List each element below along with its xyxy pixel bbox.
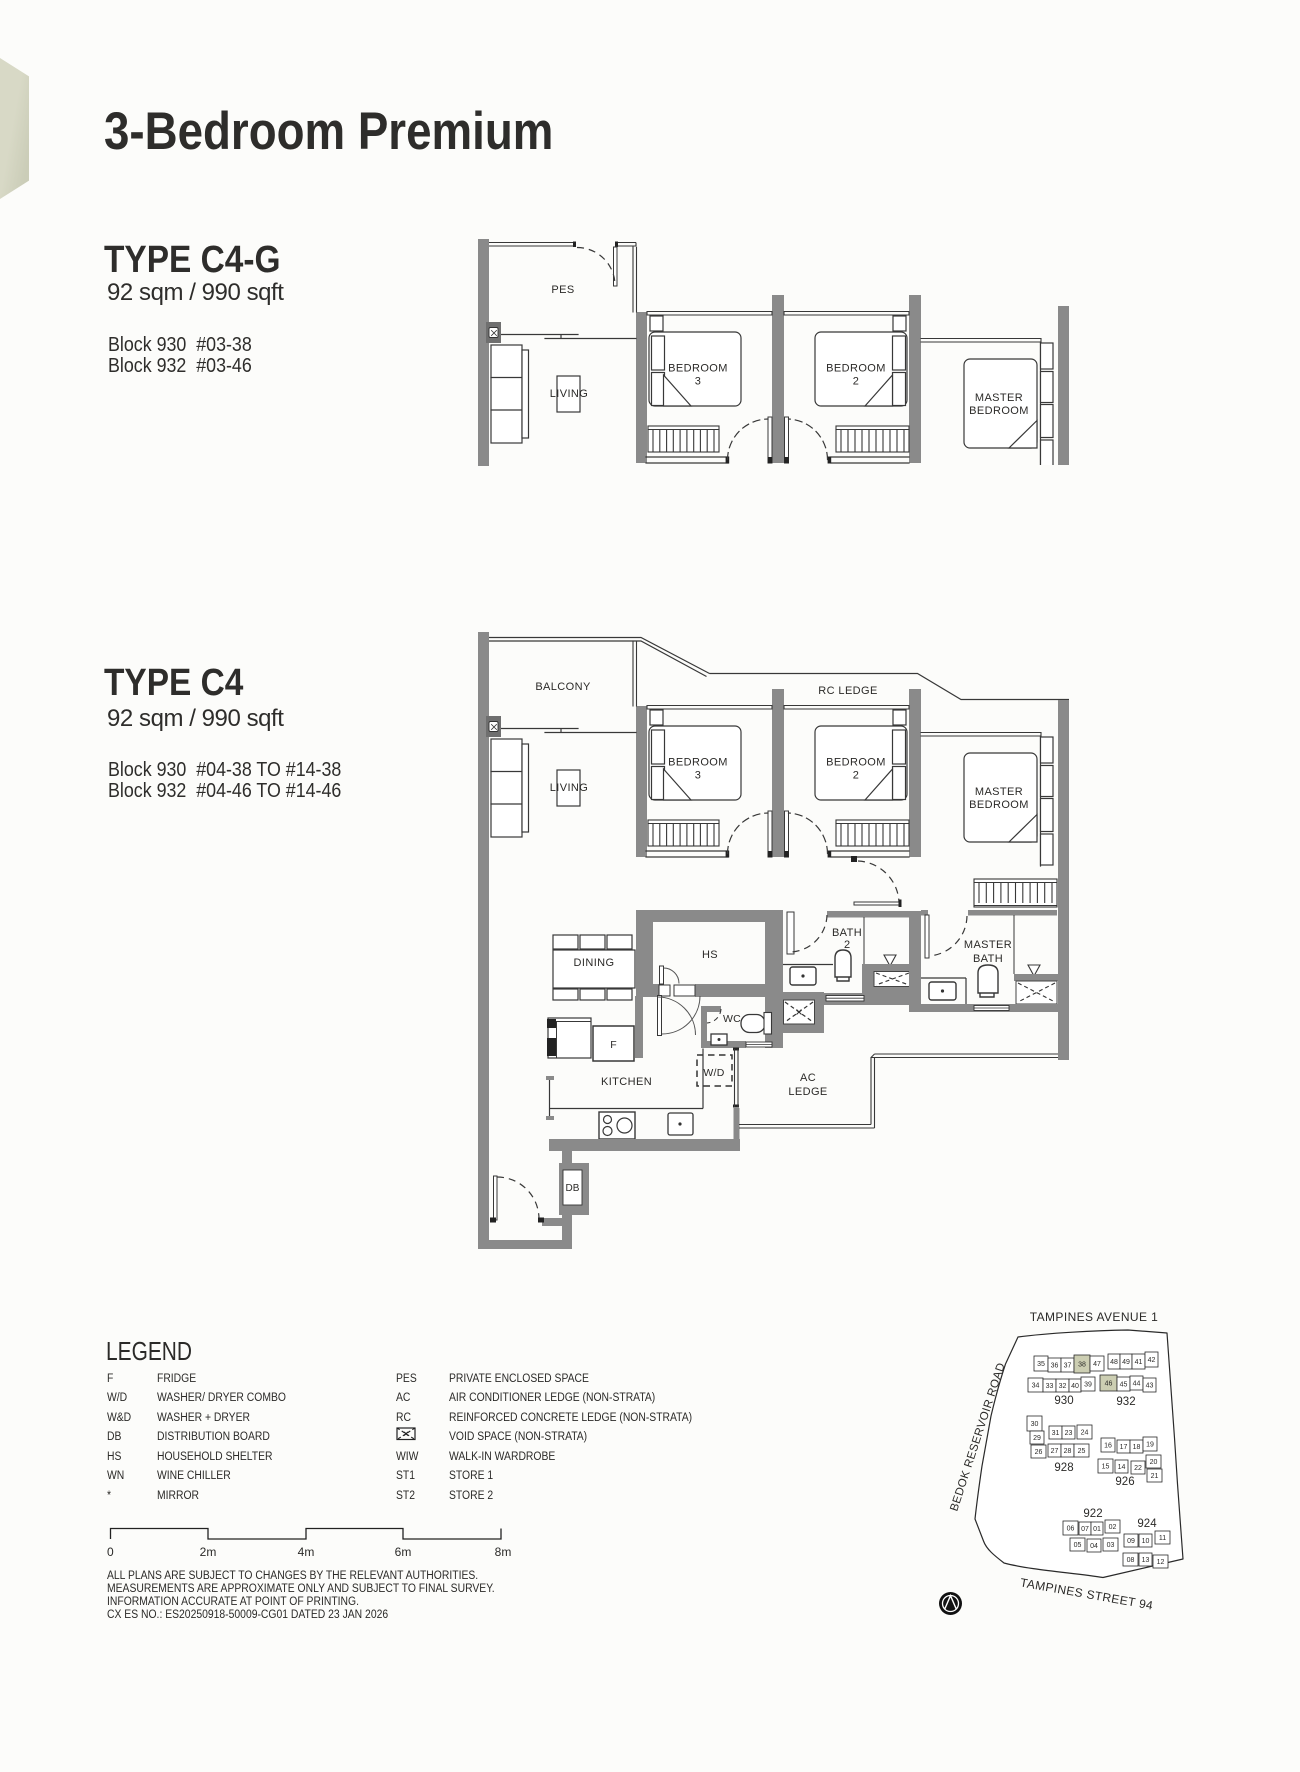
svg-text:23: 23 bbox=[1065, 1430, 1073, 1437]
svg-text:45: 45 bbox=[1120, 1382, 1128, 1389]
svg-text:TAMPINES STREET 94: TAMPINES STREET 94 bbox=[1019, 1575, 1154, 1612]
svg-text:22: 22 bbox=[1134, 1465, 1142, 1472]
svg-text:LEDGE: LEDGE bbox=[788, 1086, 827, 1098]
svg-text:2m: 2m bbox=[200, 1545, 217, 1559]
svg-text:12: 12 bbox=[1157, 1559, 1165, 1566]
svg-text:26: 26 bbox=[1035, 1449, 1043, 1456]
svg-text:05: 05 bbox=[1074, 1542, 1082, 1549]
svg-text:16: 16 bbox=[1104, 1443, 1112, 1450]
svg-text:17: 17 bbox=[1120, 1444, 1128, 1451]
svg-text:AC: AC bbox=[800, 1072, 816, 1084]
svg-text:MASTER: MASTER bbox=[964, 939, 1012, 951]
svg-text:18: 18 bbox=[1133, 1444, 1141, 1451]
svg-text:19: 19 bbox=[1146, 1442, 1154, 1449]
svg-text:RC LEDGE: RC LEDGE bbox=[818, 685, 877, 697]
svg-text:DINING: DINING bbox=[574, 957, 615, 969]
svg-text:32: 32 bbox=[1059, 1383, 1067, 1390]
svg-text:4m: 4m bbox=[298, 1545, 315, 1559]
svg-text:03: 03 bbox=[1107, 1542, 1115, 1549]
svg-text:TAMPINES AVENUE 1: TAMPINES AVENUE 1 bbox=[1030, 1310, 1158, 1324]
svg-text:F: F bbox=[610, 1039, 616, 1051]
svg-text:21: 21 bbox=[1151, 1473, 1159, 1480]
svg-text:06: 06 bbox=[1067, 1526, 1075, 1533]
svg-text:922: 922 bbox=[1083, 1508, 1102, 1520]
svg-text:04: 04 bbox=[1090, 1543, 1098, 1550]
svg-text:10: 10 bbox=[1142, 1538, 1150, 1545]
svg-text:31: 31 bbox=[1052, 1430, 1060, 1437]
svg-text:DB: DB bbox=[566, 1183, 580, 1194]
svg-text:39: 39 bbox=[1084, 1382, 1092, 1389]
svg-text:42: 42 bbox=[1148, 1357, 1156, 1364]
svg-text:41: 41 bbox=[1135, 1359, 1143, 1366]
svg-text:BATH: BATH bbox=[973, 953, 1003, 965]
svg-text:36: 36 bbox=[1051, 1363, 1059, 1370]
svg-text:27: 27 bbox=[1051, 1448, 1059, 1455]
svg-text:34: 34 bbox=[1032, 1383, 1040, 1390]
svg-text:6m: 6m bbox=[395, 1545, 412, 1559]
svg-text:24: 24 bbox=[1081, 1430, 1089, 1437]
svg-text:49: 49 bbox=[1122, 1359, 1130, 1366]
svg-text:38: 38 bbox=[1078, 1362, 1086, 1369]
svg-text:15: 15 bbox=[1102, 1464, 1110, 1471]
svg-text:37: 37 bbox=[1064, 1363, 1072, 1370]
svg-text:08: 08 bbox=[1127, 1557, 1135, 1564]
svg-text:BATH: BATH bbox=[832, 927, 862, 939]
svg-text:2: 2 bbox=[844, 939, 850, 951]
svg-text:0: 0 bbox=[107, 1545, 114, 1559]
svg-text:928: 928 bbox=[1054, 1462, 1073, 1474]
svg-text:14: 14 bbox=[1118, 1464, 1126, 1471]
svg-text:07: 07 bbox=[1081, 1526, 1089, 1533]
svg-text:W/D: W/D bbox=[703, 1067, 724, 1079]
svg-text:PES: PES bbox=[551, 284, 574, 296]
svg-text:47: 47 bbox=[1093, 1361, 1101, 1368]
svg-text:13: 13 bbox=[1142, 1557, 1150, 1564]
svg-text:KITCHEN: KITCHEN bbox=[601, 1076, 652, 1088]
svg-text:09: 09 bbox=[1127, 1538, 1135, 1545]
svg-text:29: 29 bbox=[1033, 1435, 1041, 1442]
svg-text:01: 01 bbox=[1093, 1526, 1101, 1533]
svg-text:HS: HS bbox=[702, 949, 718, 961]
svg-text:48: 48 bbox=[1110, 1359, 1118, 1366]
svg-text:926: 926 bbox=[1115, 1476, 1134, 1488]
svg-text:25: 25 bbox=[1078, 1448, 1086, 1455]
svg-text:20: 20 bbox=[1150, 1459, 1158, 1466]
svg-text:930: 930 bbox=[1054, 1395, 1073, 1407]
svg-text:WC: WC bbox=[723, 1013, 741, 1025]
svg-text:35: 35 bbox=[1037, 1361, 1045, 1368]
svg-text:02: 02 bbox=[1109, 1524, 1117, 1531]
svg-text:8m: 8m bbox=[495, 1545, 512, 1559]
svg-text:46: 46 bbox=[1105, 1381, 1113, 1388]
svg-text:44: 44 bbox=[1133, 1381, 1141, 1388]
svg-text:924: 924 bbox=[1137, 1518, 1157, 1530]
svg-text:BALCONY: BALCONY bbox=[535, 681, 591, 693]
svg-text:33: 33 bbox=[1046, 1383, 1054, 1390]
svg-text:11: 11 bbox=[1159, 1535, 1166, 1542]
svg-text:43: 43 bbox=[1146, 1383, 1154, 1390]
svg-text:28: 28 bbox=[1064, 1448, 1072, 1455]
svg-text:30: 30 bbox=[1031, 1421, 1039, 1428]
svg-text:40: 40 bbox=[1071, 1383, 1079, 1390]
svg-text:932: 932 bbox=[1116, 1396, 1135, 1408]
